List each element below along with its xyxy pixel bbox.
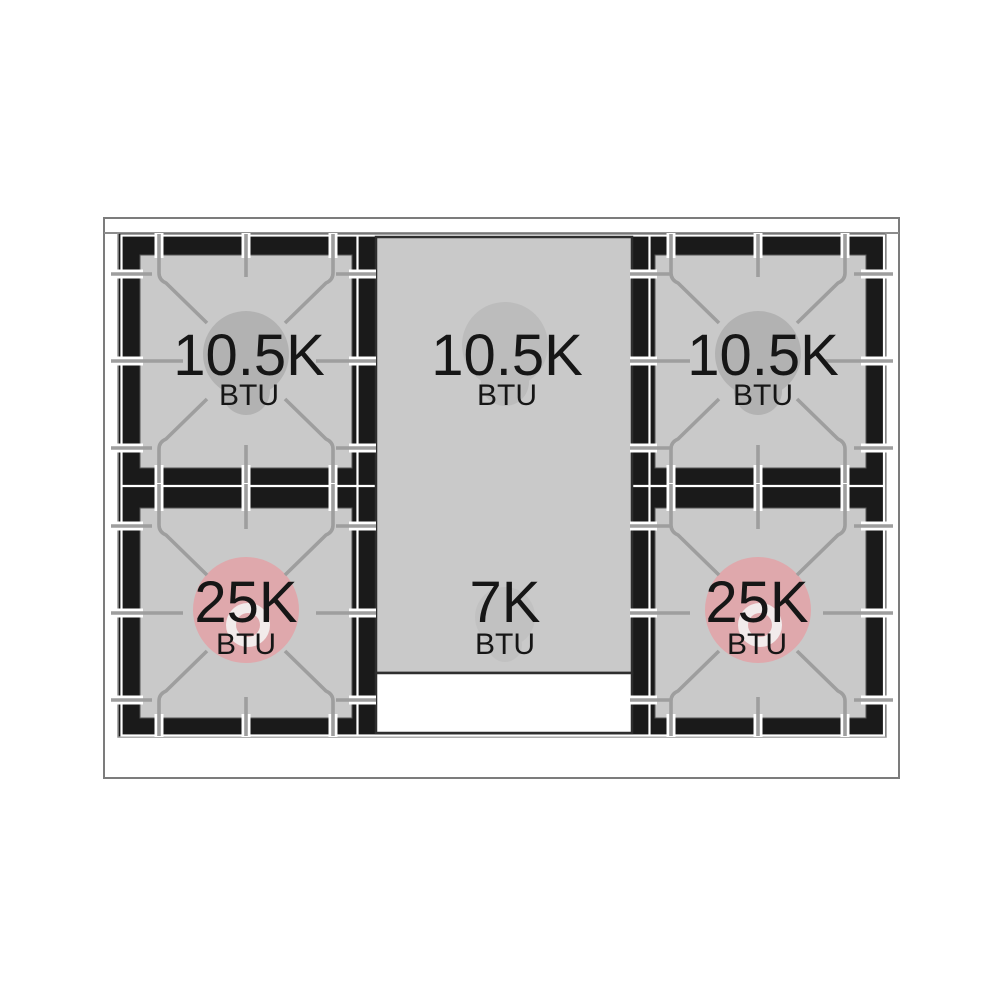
burner-btu-unit: BTU — [733, 379, 793, 412]
burner-bottom-center: 7KBTU — [470, 570, 541, 662]
cooktop-svg: 10.5KBTU10.5KBTU10.5KBTU25KBTU7KBTU25KBT… — [0, 0, 1000, 1000]
drip-tray — [376, 673, 632, 733]
burner-btu-unit: BTU — [477, 379, 537, 412]
burner-btu-value: 7K — [470, 570, 541, 635]
burner-btu-unit: BTU — [216, 628, 276, 661]
cooktop-diagram: 10.5KBTU10.5KBTU10.5KBTU25KBTU7KBTU25KBT… — [0, 0, 1000, 1000]
burner-btu-value: 25K — [705, 570, 809, 635]
burner-btu-unit: BTU — [219, 379, 279, 412]
burner-btu-unit: BTU — [727, 628, 787, 661]
burner-btu-value: 25K — [194, 570, 298, 635]
burner-btu-unit: BTU — [475, 628, 535, 661]
